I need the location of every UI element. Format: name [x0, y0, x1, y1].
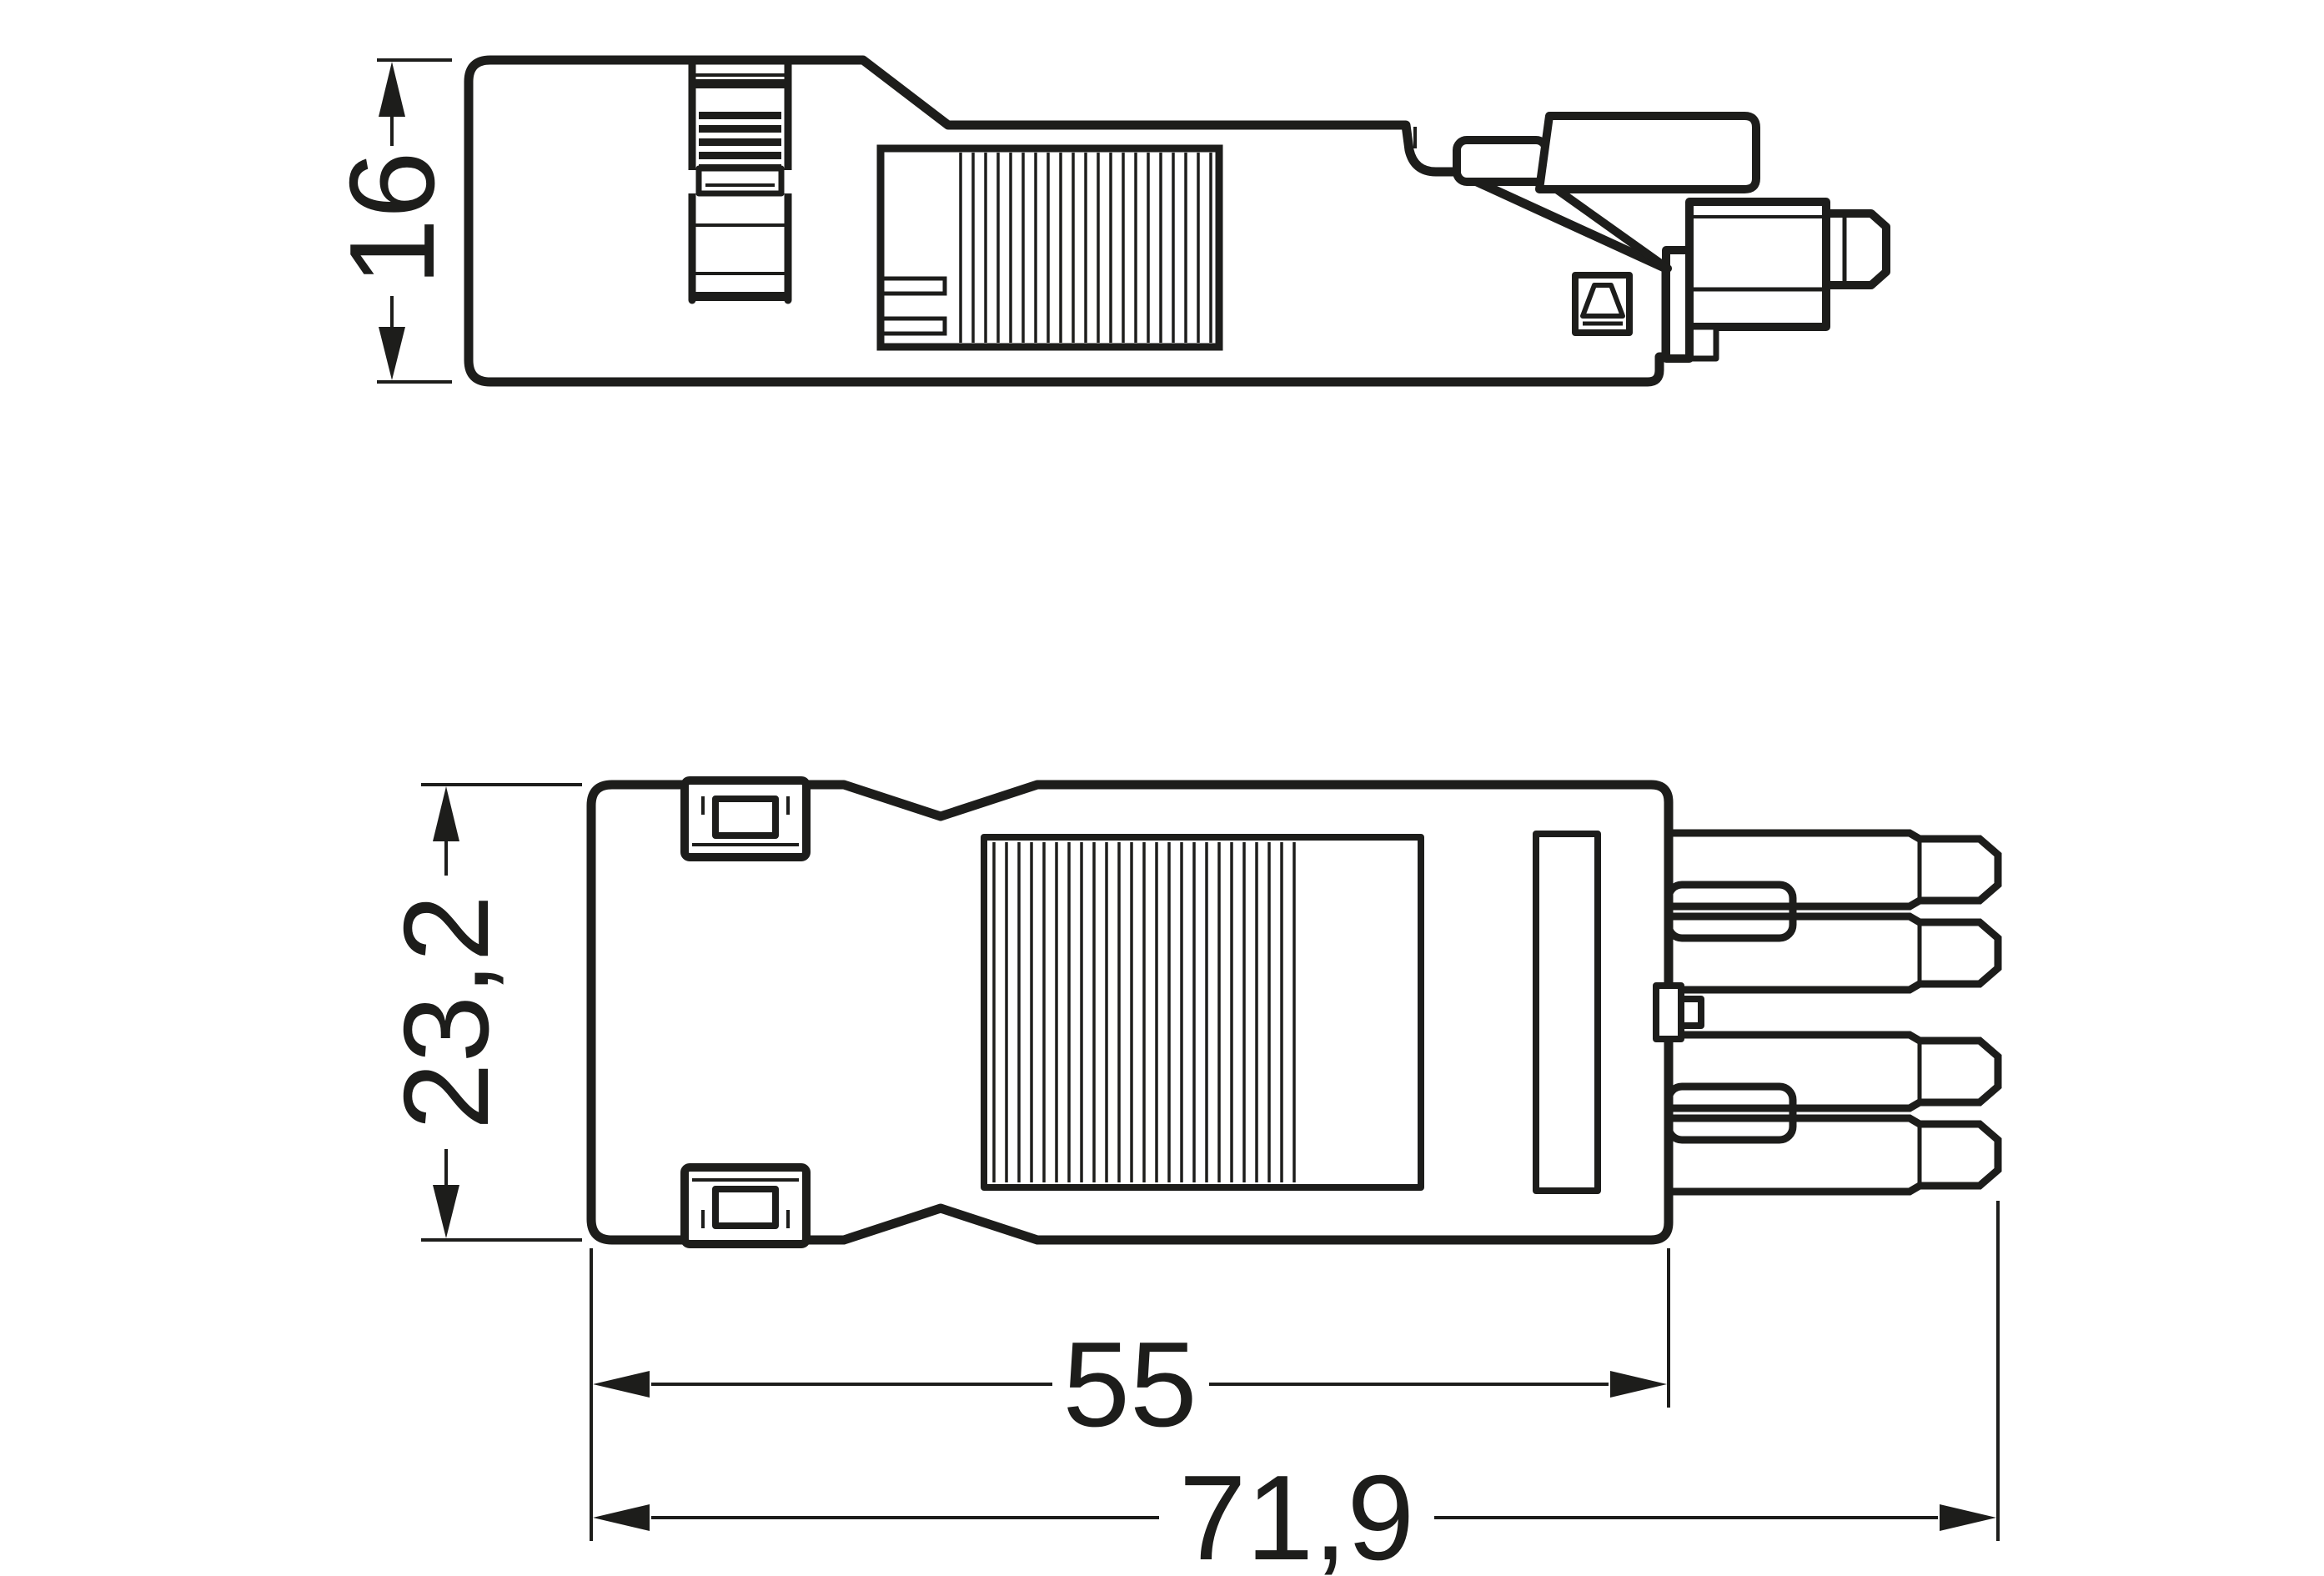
plan-view: 23,2 55 71,9 — [379, 780, 1998, 1576]
clip-window — [715, 1189, 776, 1226]
center-tab-nub — [1681, 999, 1701, 1026]
arrowhead-left-icon — [593, 1504, 650, 1531]
dim-16-label: 16 — [324, 151, 459, 285]
ratchet-tooth — [699, 138, 781, 146]
socket-tube — [1669, 1118, 1998, 1192]
socket-tube — [1669, 1035, 1998, 1108]
actuation-lever — [1669, 1087, 1793, 1140]
side-body-outline — [469, 60, 1666, 382]
ratchet-tooth — [699, 125, 781, 133]
dimension-side-height: 16 — [324, 60, 459, 382]
arrowhead-up-icon — [379, 62, 405, 117]
cable-clip-bottom — [685, 1167, 806, 1244]
technical-drawing-svg: 16 — [0, 0, 2324, 1576]
grip-serrations-plan — [984, 837, 1421, 1187]
ratchet-bottom-bar — [690, 292, 790, 301]
actuation-lever — [1669, 885, 1793, 938]
dim-55-label: 55 — [1062, 1317, 1197, 1452]
contact-carrier — [1689, 202, 1826, 327]
dimension-total-length: 71,9 — [593, 1201, 1998, 1576]
ratchet-tooth — [699, 152, 781, 159]
arrowhead-down-icon — [379, 327, 405, 380]
ratchet-bar — [692, 79, 788, 88]
dimension-body-length: 55 — [591, 1248, 1669, 1541]
socket-tube — [1669, 833, 1998, 906]
latch-pivot — [1457, 140, 1546, 182]
arrowhead-left-icon — [593, 1371, 650, 1398]
contact-nose — [1826, 213, 1886, 285]
label-plate — [1536, 834, 1598, 1191]
cable-clip-top — [685, 780, 806, 857]
arrowhead-down-icon — [433, 1185, 459, 1238]
center-tab — [1656, 986, 1681, 1039]
clip-window — [715, 799, 776, 836]
grip-block — [984, 837, 1421, 1187]
ratchet-gap-left — [685, 170, 696, 193]
technical-drawing-page: 16 — [0, 0, 2324, 1576]
ratchet-clip — [699, 168, 781, 193]
socket-tube — [1669, 916, 1998, 990]
grip-hatch-lines — [961, 153, 1211, 343]
arrowhead-right-icon — [1610, 1371, 1667, 1398]
side-view: 16 — [324, 60, 1886, 382]
ratchet-gap-right — [784, 170, 795, 193]
dim-71-9-label: 71,9 — [1179, 1450, 1414, 1576]
dim-23-2-label: 23,2 — [379, 895, 514, 1130]
latch-lever — [1539, 116, 1756, 189]
arrowhead-right-icon — [1940, 1504, 1996, 1531]
coding-mark-icon — [1575, 275, 1629, 333]
ratchet-tooth — [699, 112, 781, 119]
arrowhead-up-icon — [433, 786, 459, 841]
dimension-plan-height: 23,2 — [379, 785, 582, 1240]
